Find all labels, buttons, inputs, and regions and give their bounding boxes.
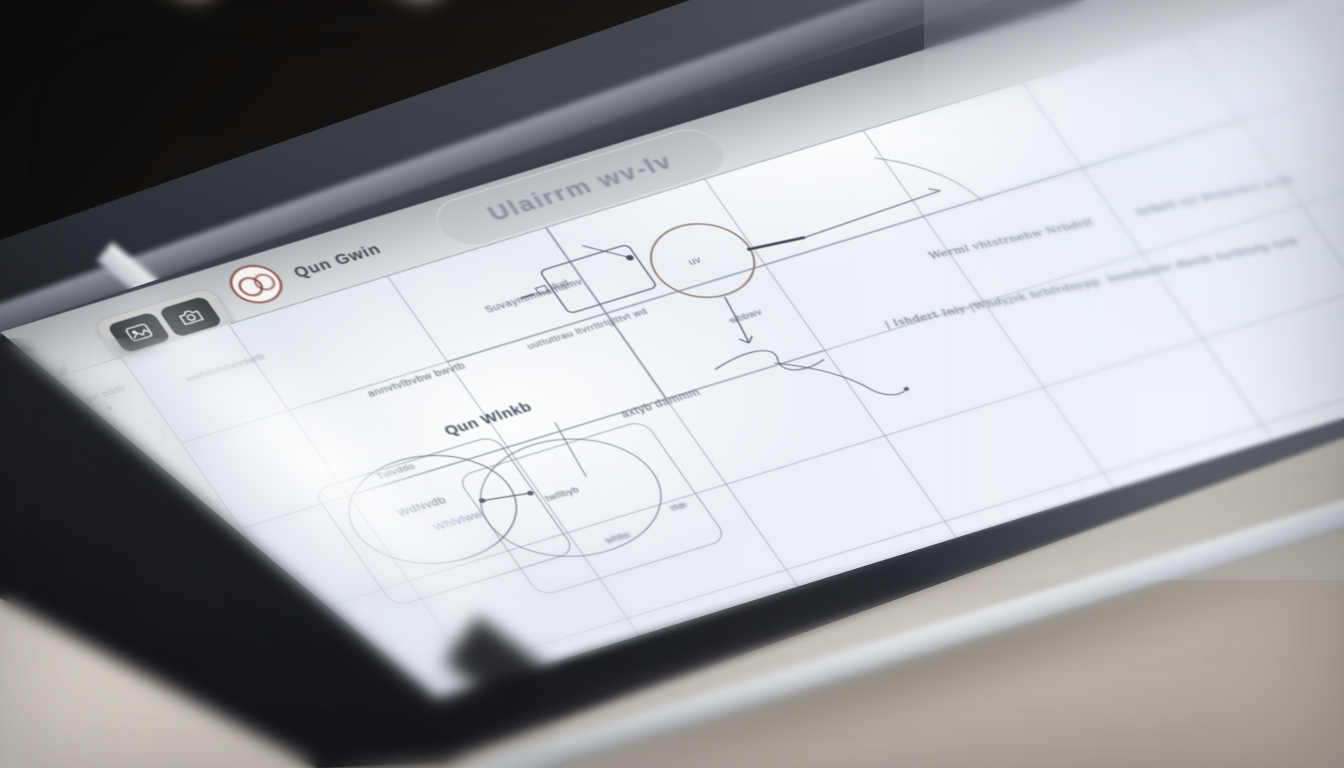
note-segment: Werml vhtstrnehw Nrbdrlt [926, 216, 1095, 261]
note-segment: tytbrtl ryt Wrdnvbvl wvlb [1134, 173, 1296, 217]
canvas-label: twllbyb [543, 485, 581, 503]
canvas-label: axtyb dammm [618, 386, 703, 420]
keyboard-key [343, 0, 478, 4]
canvas-label: tfdr [669, 501, 690, 514]
canvas-label: Suvaymmmamamv [483, 277, 585, 315]
keyboard-key [117, 0, 252, 3]
canvas-label: wfdw [604, 531, 633, 546]
photo-scene: ▲ Nturrinnd ktvwvn Mw Gw Ww Bd Qun Gwin … [0, 0, 1344, 768]
node-label: uv [686, 255, 703, 267]
canvas-label: annvtvlbvbw bwvtb [365, 361, 468, 399]
canvas-highlight-label: Qun Wlnkb [442, 400, 536, 439]
canvas-label: wbbwv [727, 308, 764, 326]
canvas-label: uuttuttrau ltvrrttrtglttvt wd [525, 307, 650, 351]
